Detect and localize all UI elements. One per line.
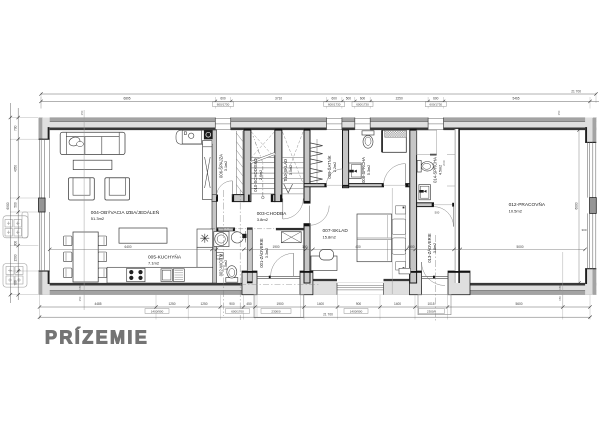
svg-text:600: 600 xyxy=(433,97,439,101)
svg-text:300: 300 xyxy=(582,228,587,232)
svg-text:600/1730: 600/1730 xyxy=(328,103,341,107)
svg-text:150: 150 xyxy=(558,296,562,301)
svg-text:150: 150 xyxy=(557,110,561,115)
svg-text:2300/9: 2300/9 xyxy=(427,309,437,313)
svg-text:004-OBÝVACIA IZBA/JEDÁLEŇ: 004-OBÝVACIA IZBA/JEDÁLEŇ xyxy=(91,209,160,216)
svg-text:10.5m2: 10.5m2 xyxy=(509,209,523,214)
svg-text:600/1730: 600/1730 xyxy=(430,103,443,107)
svg-text:1900: 1900 xyxy=(276,302,283,306)
svg-text:600/1730: 600/1730 xyxy=(217,103,230,107)
svg-text:21 700: 21 700 xyxy=(323,313,333,317)
svg-text:1.5m2: 1.5m2 xyxy=(224,260,228,270)
svg-text:150: 150 xyxy=(302,245,308,249)
svg-text:500: 500 xyxy=(14,202,18,208)
svg-text:2250: 2250 xyxy=(396,97,403,101)
svg-text:21 700: 21 700 xyxy=(571,89,581,93)
svg-text:1500: 1500 xyxy=(14,254,18,261)
svg-text:6900: 6900 xyxy=(6,202,10,209)
svg-text:400: 400 xyxy=(355,245,361,249)
svg-text:5600: 5600 xyxy=(515,302,522,306)
svg-text:2.6m2: 2.6m2 xyxy=(259,170,263,180)
svg-text:3.8m2: 3.8m2 xyxy=(433,243,437,253)
svg-text:500: 500 xyxy=(346,97,352,101)
svg-text:009-ŠATNÍK: 009-ŠATNÍK xyxy=(327,155,332,178)
svg-text:PRÍZEMIE: PRÍZEMIE xyxy=(45,327,149,348)
svg-text:2.2m2: 2.2m2 xyxy=(333,162,337,172)
svg-text:7.1m2: 7.1m2 xyxy=(148,260,160,265)
svg-text:013-ZÁDVERIE: 013-ZÁDVERIE xyxy=(427,233,432,263)
svg-text:600: 600 xyxy=(332,97,338,101)
svg-text:001-ZÁDVERIE: 001-ZÁDVERIE xyxy=(259,238,264,268)
svg-text:1400/900: 1400/900 xyxy=(151,309,164,313)
svg-text:4.5m2: 4.5m2 xyxy=(439,165,443,175)
svg-text:2300/0: 2300/0 xyxy=(271,309,281,313)
svg-text:007-SKLAD: 007-SKLAD xyxy=(323,228,349,234)
svg-text:3.1m2: 3.1m2 xyxy=(224,161,228,171)
svg-text:450: 450 xyxy=(246,302,252,306)
svg-text:150: 150 xyxy=(78,285,82,290)
svg-text:51.3m2: 51.3m2 xyxy=(91,216,105,221)
svg-text:4000: 4000 xyxy=(407,245,414,249)
svg-text:3710: 3710 xyxy=(275,97,282,101)
svg-text:006-ŠPAJZA: 006-ŠPAJZA xyxy=(218,154,223,178)
svg-text:010-SCHODISKO: 010-SCHODISKO xyxy=(253,158,258,192)
svg-text:1900: 1900 xyxy=(272,245,279,249)
svg-text:6895: 6895 xyxy=(123,97,130,101)
svg-text:150: 150 xyxy=(558,285,562,290)
svg-text:15.8m2: 15.8m2 xyxy=(323,235,337,240)
svg-text:5465: 5465 xyxy=(512,97,519,101)
svg-text:4485: 4485 xyxy=(94,302,101,306)
svg-text:700: 700 xyxy=(14,280,18,286)
svg-text:1250: 1250 xyxy=(200,302,207,306)
svg-text:012-PRACOVŇA: 012-PRACOVŇA xyxy=(509,201,546,208)
svg-text:002-WC/TM: 002-WC/TM xyxy=(219,253,224,276)
svg-text:1400: 1400 xyxy=(394,302,401,306)
svg-text:5000: 5000 xyxy=(516,245,523,249)
svg-text:3.3m2: 3.3m2 xyxy=(265,248,269,258)
svg-text:600/1700: 600/1700 xyxy=(231,309,244,313)
svg-text:500: 500 xyxy=(435,211,440,215)
svg-text:6400: 6400 xyxy=(124,245,131,249)
svg-text:1400/900: 1400/900 xyxy=(350,309,363,313)
svg-text:600: 600 xyxy=(220,97,226,101)
svg-text:010-SKLAD: 010-SKLAD xyxy=(283,159,288,181)
svg-text:6000: 6000 xyxy=(574,202,578,209)
svg-text:1015: 1015 xyxy=(427,302,434,306)
svg-text:4350: 4350 xyxy=(14,165,18,172)
svg-text:003-CHODBA: 003-CHODBA xyxy=(257,211,287,216)
svg-text:2000: 2000 xyxy=(442,160,446,166)
svg-text:1400: 1400 xyxy=(317,302,324,306)
svg-text:600: 600 xyxy=(360,97,366,101)
svg-text:5.3m2: 5.3m2 xyxy=(367,165,371,175)
svg-text:008-SPRCHA: 008-SPRCHA xyxy=(361,157,366,183)
svg-text:600/1730: 600/1730 xyxy=(356,103,369,107)
svg-text:014-SPRCHA: 014-SPRCHA xyxy=(433,157,438,183)
svg-text:150: 150 xyxy=(80,110,84,115)
svg-text:150: 150 xyxy=(78,296,82,301)
svg-text:005-KUCHYŇA: 005-KUCHYŇA xyxy=(148,253,182,260)
svg-text:900: 900 xyxy=(229,302,235,306)
svg-text:1250: 1250 xyxy=(168,302,175,306)
svg-text:300: 300 xyxy=(14,241,18,247)
svg-text:3.5m2: 3.5m2 xyxy=(289,165,293,175)
svg-text:900: 900 xyxy=(356,302,362,306)
svg-text:3.8m2: 3.8m2 xyxy=(257,217,269,222)
svg-text:700: 700 xyxy=(14,125,18,131)
